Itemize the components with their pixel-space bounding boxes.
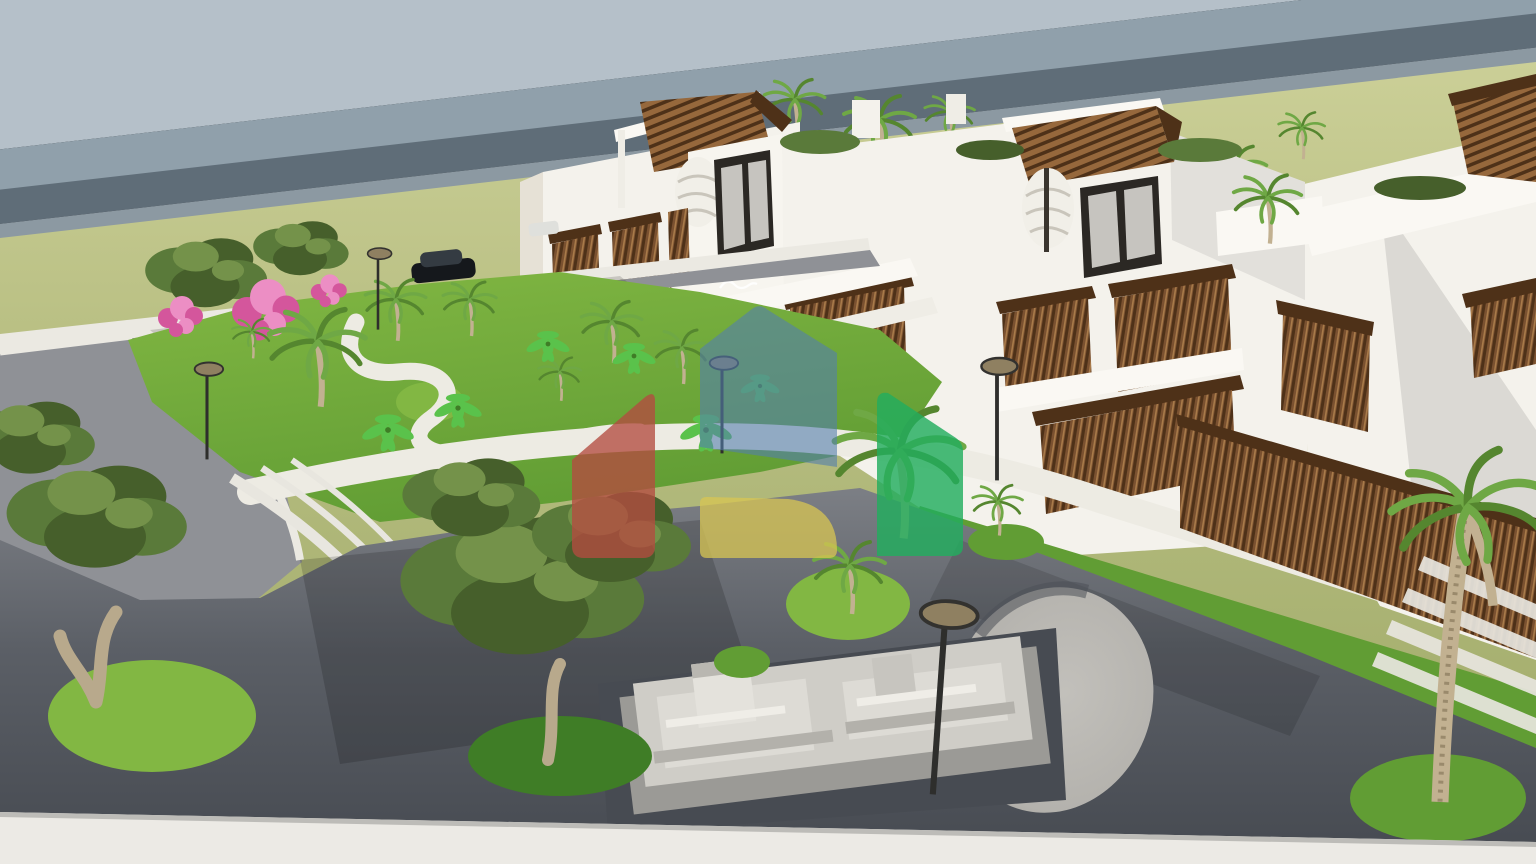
block-a-roof-window <box>714 150 774 258</box>
block-a-pergola-post <box>618 130 625 208</box>
block-b-roof-window <box>1080 176 1162 278</box>
architectural-render <box>0 0 1536 864</box>
render-canvas <box>0 0 1536 864</box>
